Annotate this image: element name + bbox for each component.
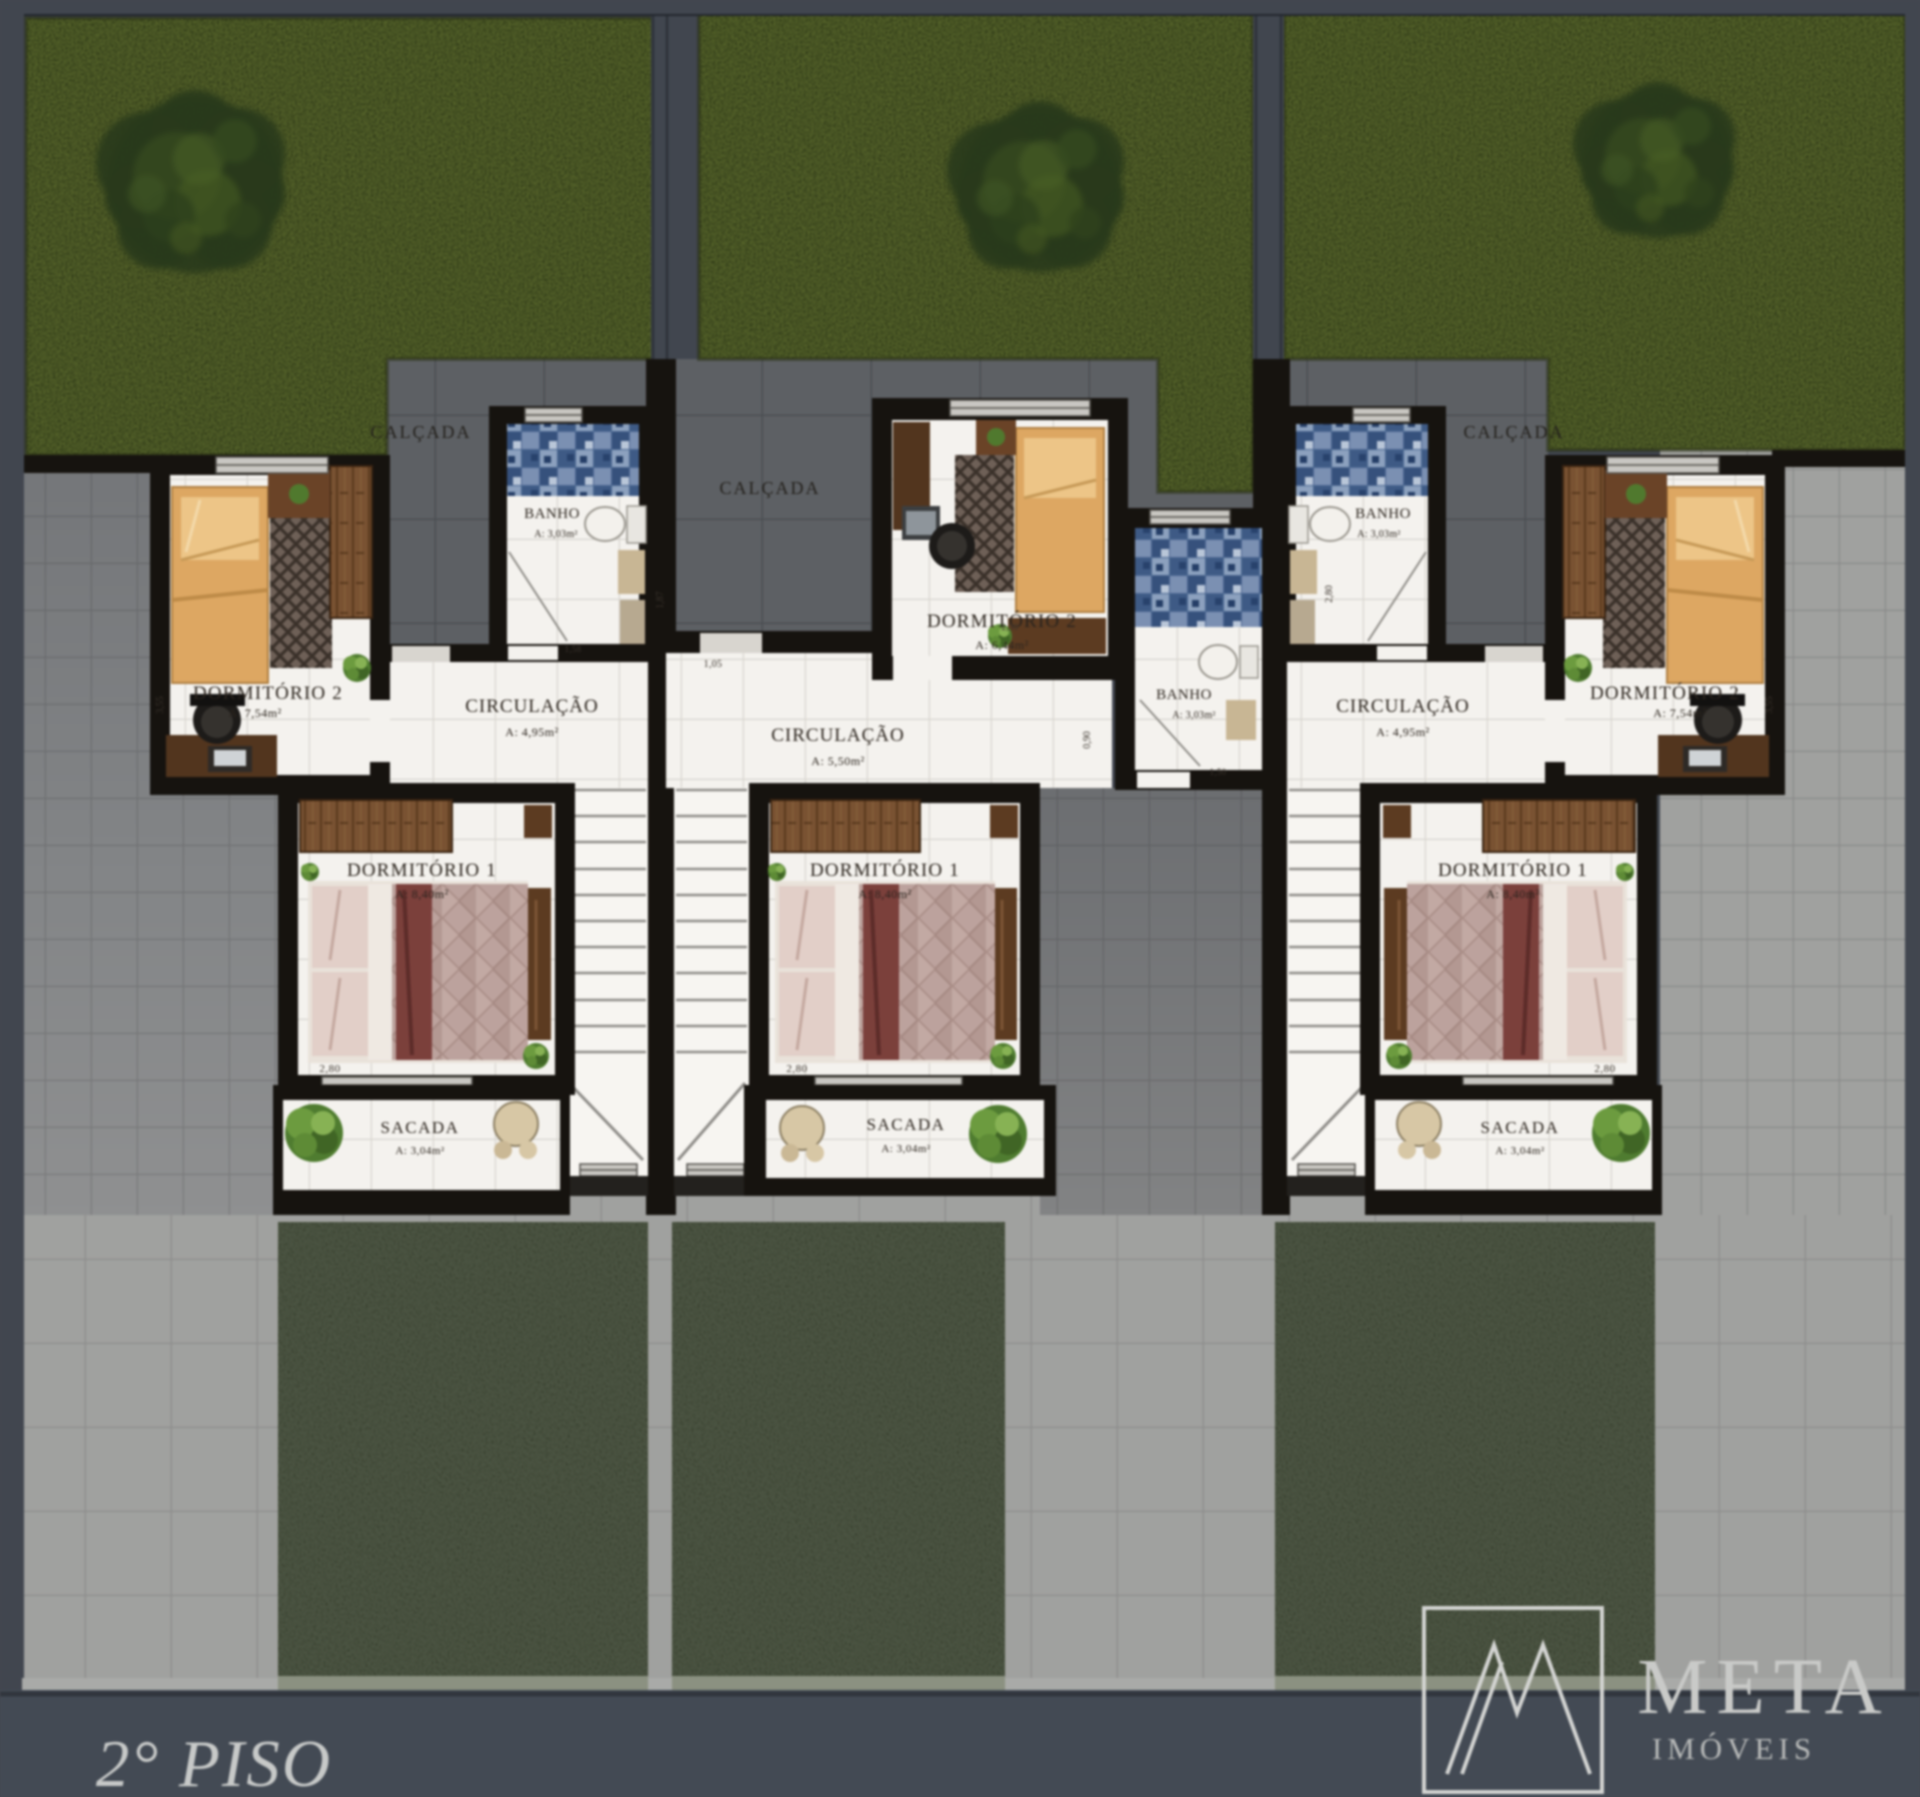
svg-text:2,80: 2,80 [1594,1063,1615,1075]
svg-text:A: 7,54m²: A: 7,54m² [1653,706,1706,720]
svg-text:A: 7,54m²: A: 7,54m² [228,706,281,720]
svg-text:A: 5,50m²: A: 5,50m² [811,754,864,768]
svg-text:BANHO: BANHO [524,506,580,522]
svg-text:CALÇADA: CALÇADA [719,478,820,498]
svg-text:META: META [1637,1644,1890,1731]
svg-text:A: 3,03m²: A: 3,03m² [1172,710,1215,721]
svg-text:3,55: 3,55 [155,696,166,714]
svg-text:A: 3,03m²: A: 3,03m² [534,529,577,540]
svg-text:1,05: 1,05 [704,659,723,670]
svg-text:A: 3,04m²: A: 3,04m² [1495,1145,1545,1157]
svg-text:A: 6,44m²: A: 6,44m² [975,638,1028,652]
svg-text:DORMITÓRIO 2: DORMITÓRIO 2 [1590,682,1740,704]
svg-text:DORMITÓRIO 1: DORMITÓRIO 1 [810,859,960,881]
svg-text:3,55: 3,55 [1764,696,1775,714]
svg-text:A: 4,95m²: A: 4,95m² [1376,725,1429,739]
svg-text:SACADA: SACADA [867,1115,946,1134]
svg-text:A: 8,40m²: A: 8,40m² [395,887,448,901]
svg-text:CIRCULAÇÃO: CIRCULAÇÃO [465,695,599,717]
svg-text:2,80: 2,80 [319,1063,340,1075]
svg-text:0,90: 0,90 [1082,731,1093,749]
svg-text:BANHO: BANHO [1156,687,1212,703]
svg-text:CALÇADA: CALÇADA [370,422,471,442]
svg-text:CIRCULAÇÃO: CIRCULAÇÃO [1336,695,1470,717]
svg-text:A: 3,04m²: A: 3,04m² [881,1143,931,1155]
svg-text:DORMITÓRIO 1: DORMITÓRIO 1 [347,859,497,881]
svg-text:CIRCULAÇÃO: CIRCULAÇÃO [771,724,905,746]
svg-text:2,80: 2,80 [786,1063,807,1075]
svg-text:BANHO: BANHO [1355,506,1411,522]
svg-text:SACADA: SACADA [1481,1118,1560,1137]
svg-text:2,80: 2,80 [1324,585,1335,603]
svg-text:2,30: 2,30 [1002,622,1019,632]
svg-text:CALÇADA: CALÇADA [1463,422,1564,442]
svg-text:A: 3,03m²: A: 3,03m² [1357,529,1400,540]
svg-text:A: 4,95m²: A: 4,95m² [505,725,558,739]
svg-text:IMÓVEIS: IMÓVEIS [1652,1731,1816,1766]
svg-text:DORMITÓRIO 1: DORMITÓRIO 1 [1438,859,1588,881]
svg-text:1,87: 1,87 [655,591,666,609]
svg-text:DORMITÓRIO 2: DORMITÓRIO 2 [193,682,343,704]
svg-text:2° PISO: 2° PISO [96,1727,332,1797]
svg-text:1,58: 1,58 [565,644,582,654]
svg-text:SACADA: SACADA [381,1118,460,1137]
svg-text:A: 3,04m²: A: 3,04m² [395,1145,445,1157]
svg-text:A: 8,40m²: A: 8,40m² [858,887,911,901]
svg-text:1,50: 1,50 [1210,767,1227,777]
svg-text:A: 8,40m²: A: 8,40m² [1486,887,1539,901]
